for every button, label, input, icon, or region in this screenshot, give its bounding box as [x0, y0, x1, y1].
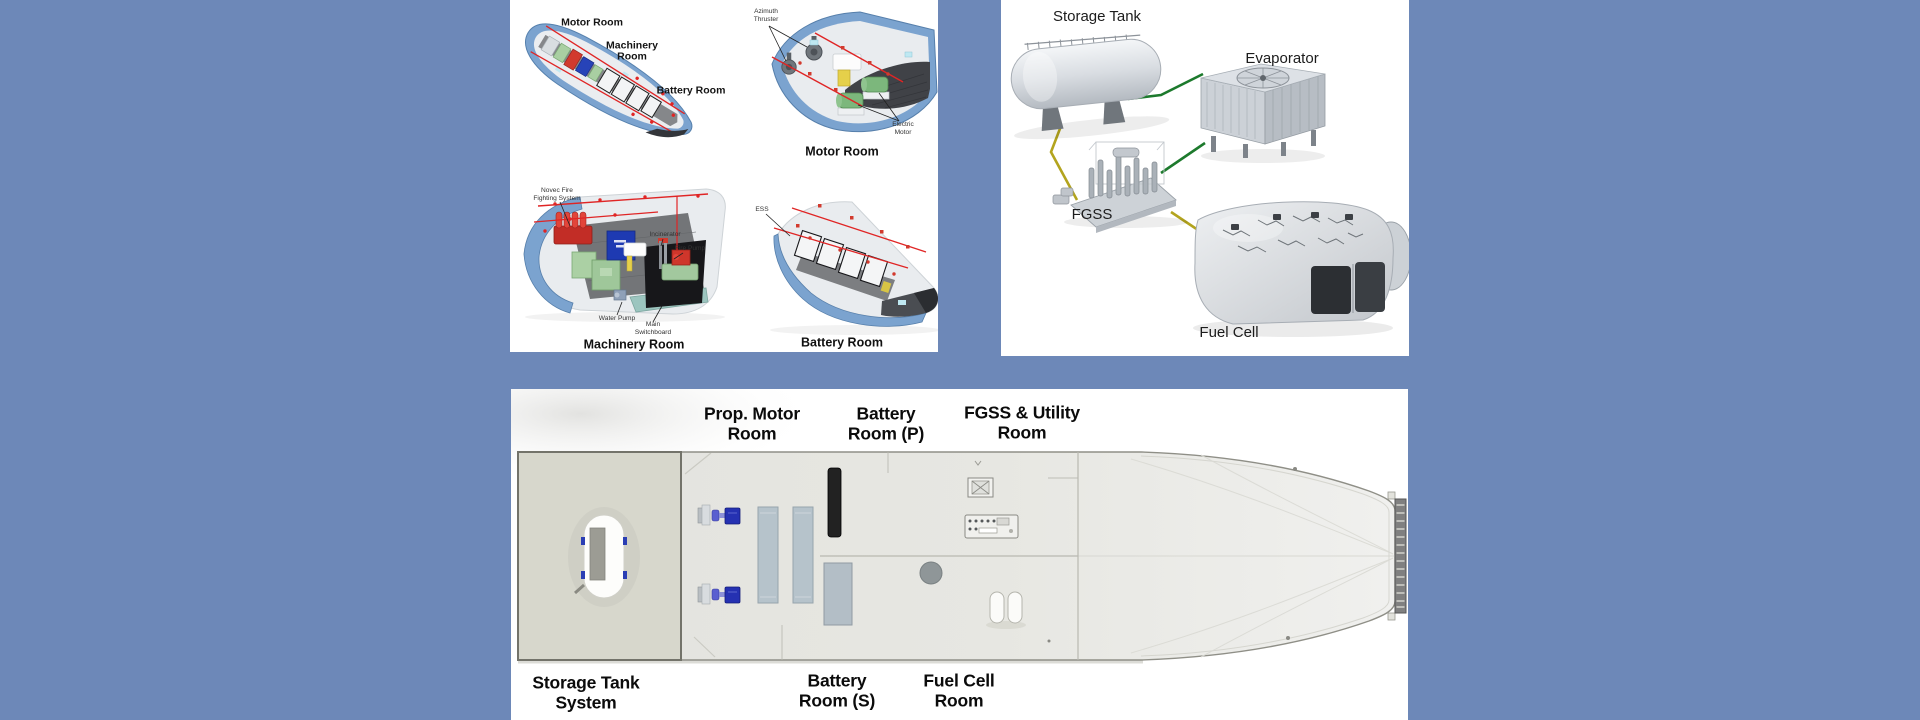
- battery-rack-p: [828, 468, 841, 537]
- fuel-cell-illustration: [1193, 202, 1409, 337]
- storage-tank-illustration: [1005, 29, 1170, 144]
- machinery-room-cutaway: [524, 189, 725, 322]
- deck-plan-panel: Prop. Motor Room Battery Room (P) FGSS &…: [511, 389, 1408, 720]
- fgss-skid-illustration: [1053, 142, 1188, 233]
- cutaway-rooms-panel: Motor Room Machinery Room Battery Room A…: [510, 0, 938, 352]
- overview-hull-cutaway: [513, 10, 705, 156]
- deck-plan-illustration: [511, 389, 1408, 720]
- deck-hatch-circle: [920, 562, 942, 584]
- slide-background: { "colors": { "background": "#6d88b8", "…: [0, 0, 1920, 720]
- motor-room-cutaway: [769, 12, 937, 132]
- fgss-flow-illustration: [1001, 0, 1409, 356]
- cutaway-rooms-illustration: [510, 0, 938, 352]
- evaporator-illustration: [1201, 64, 1325, 163]
- battery-rack-s: [824, 563, 852, 625]
- water-pump-unit: [614, 290, 626, 300]
- fgss-flow-panel: Storage Tank Evaporator FGSS Fuel Cell: [1001, 0, 1409, 356]
- storage-tank-room: [518, 452, 681, 660]
- battery-room-cutaway: [766, 202, 938, 335]
- novec-skid: [554, 212, 592, 244]
